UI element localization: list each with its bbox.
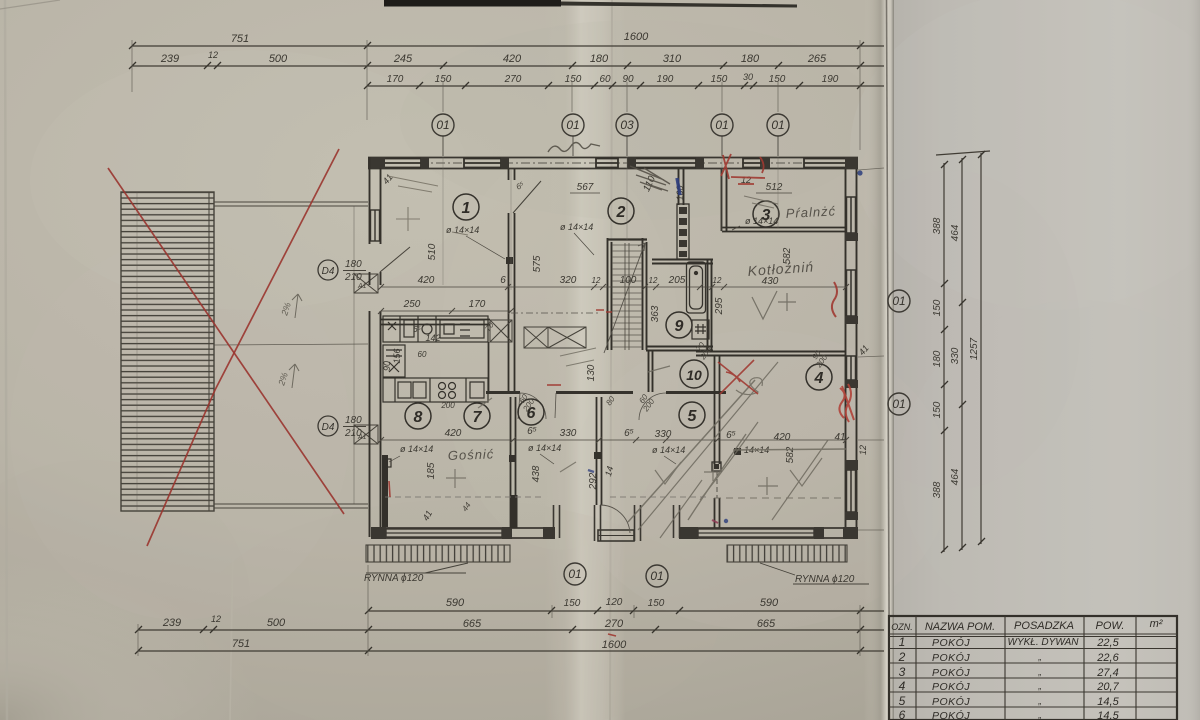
svg-text:14,5: 14,5 <box>1097 696 1119 708</box>
svg-text:567: 567 <box>577 182 594 193</box>
svg-text:WYKŁ. DYWAN: WYKŁ. DYWAN <box>1008 637 1080 648</box>
svg-text:751: 751 <box>231 33 249 45</box>
svg-text:6⁵: 6⁵ <box>624 428 634 439</box>
svg-text:510: 510 <box>427 243 438 260</box>
svg-text:180: 180 <box>590 53 609 65</box>
svg-text:200: 200 <box>440 401 455 410</box>
svg-text:OZN.: OZN. <box>891 622 913 632</box>
svg-text:14,5: 14,5 <box>1097 710 1119 720</box>
svg-text:30: 30 <box>743 72 753 82</box>
svg-text:150: 150 <box>435 74 452 85</box>
svg-text:1: 1 <box>462 200 471 217</box>
svg-text:4: 4 <box>899 679 906 693</box>
svg-text:„: „ <box>1038 681 1042 691</box>
svg-text:12: 12 <box>592 276 601 285</box>
svg-text:ø 14×14: ø 14×14 <box>528 443 561 453</box>
svg-text:RYNNA ϕ120: RYNNA ϕ120 <box>364 573 424 584</box>
svg-text:590: 590 <box>446 597 465 609</box>
svg-text:120: 120 <box>606 597 623 608</box>
svg-text:12: 12 <box>211 614 221 624</box>
svg-text:185: 185 <box>426 462 437 479</box>
svg-text:„: „ <box>1038 667 1042 677</box>
svg-text:150: 150 <box>711 74 728 85</box>
svg-text:512: 512 <box>766 182 783 193</box>
svg-text:420: 420 <box>503 53 522 65</box>
svg-text:„: „ <box>1038 710 1042 720</box>
svg-text:150: 150 <box>769 74 786 85</box>
svg-text:363: 363 <box>650 305 661 322</box>
svg-text:27,4: 27,4 <box>1096 667 1118 679</box>
svg-text:POKÓJ: POKÓJ <box>932 709 970 720</box>
svg-text:01: 01 <box>892 397 905 411</box>
svg-text:330: 330 <box>655 429 672 440</box>
svg-text:388: 388 <box>932 217 943 234</box>
svg-text:751: 751 <box>232 638 250 650</box>
svg-text:270: 270 <box>604 618 624 630</box>
svg-text:245: 245 <box>393 53 413 65</box>
svg-text:POKÓJ: POKÓJ <box>932 651 970 664</box>
svg-text:190: 190 <box>822 74 839 85</box>
svg-text:41: 41 <box>834 432 845 443</box>
svg-text:01: 01 <box>892 294 905 308</box>
svg-text:150: 150 <box>932 401 943 418</box>
svg-text:01: 01 <box>568 567 581 581</box>
svg-text:575: 575 <box>532 255 543 272</box>
svg-text:430: 430 <box>762 276 779 287</box>
svg-text:POKÓJ: POKÓJ <box>932 636 970 649</box>
svg-text:190: 190 <box>657 74 674 85</box>
svg-text:5: 5 <box>688 408 698 425</box>
svg-text:„: „ <box>1038 696 1042 706</box>
svg-text:7: 7 <box>473 409 483 426</box>
svg-text:180: 180 <box>741 53 760 65</box>
svg-text:12: 12 <box>649 276 658 285</box>
svg-text:420: 420 <box>418 275 435 286</box>
svg-text:Gośnić: Gośnić <box>448 446 495 463</box>
svg-text:388: 388 <box>932 481 943 498</box>
svg-text:6⁵: 6⁵ <box>726 430 736 441</box>
svg-text:582: 582 <box>782 247 793 264</box>
svg-text:5: 5 <box>899 694 906 708</box>
svg-text:2: 2 <box>616 204 626 221</box>
svg-text:180: 180 <box>345 415 362 426</box>
svg-text:12: 12 <box>858 445 868 455</box>
svg-text:205: 205 <box>668 275 686 286</box>
svg-text:170: 170 <box>387 74 404 85</box>
svg-text:12: 12 <box>713 276 722 285</box>
svg-text:A1: A1 <box>357 283 367 290</box>
svg-text:180: 180 <box>932 350 943 367</box>
svg-text:22,6: 22,6 <box>1096 652 1119 664</box>
svg-text:10: 10 <box>686 367 702 383</box>
svg-text:295: 295 <box>714 297 725 315</box>
svg-text:464: 464 <box>950 224 961 241</box>
svg-text:590: 590 <box>760 597 779 609</box>
svg-text:6⁵: 6⁵ <box>413 325 421 334</box>
svg-text:292: 292 <box>588 472 599 490</box>
svg-text:438: 438 <box>531 465 542 482</box>
svg-text:22,5: 22,5 <box>1096 637 1119 649</box>
svg-text:4: 4 <box>814 370 824 387</box>
svg-text:ø 14×14: ø 14×14 <box>652 445 685 455</box>
svg-text:01: 01 <box>715 118 728 132</box>
svg-text:NAZWA POM.: NAZWA POM. <box>925 621 995 633</box>
svg-text:01: 01 <box>436 118 449 132</box>
svg-text:01: 01 <box>771 118 784 132</box>
svg-text:8: 8 <box>414 409 423 426</box>
svg-text:150: 150 <box>565 74 582 85</box>
svg-text:6: 6 <box>899 708 906 720</box>
svg-text:420: 420 <box>445 428 462 439</box>
svg-text:01: 01 <box>566 118 579 132</box>
svg-text:9: 9 <box>675 318 684 335</box>
svg-text:6⁵: 6⁵ <box>527 426 537 437</box>
svg-text:1600: 1600 <box>624 31 649 43</box>
svg-text:90: 90 <box>382 361 392 371</box>
svg-text:100: 100 <box>620 275 637 286</box>
svg-text:180: 180 <box>345 259 362 270</box>
svg-text:1600: 1600 <box>602 639 627 651</box>
svg-text:ø 14×14: ø 14×14 <box>400 444 433 454</box>
svg-text:464: 464 <box>950 468 961 485</box>
svg-text:156: 156 <box>392 348 402 363</box>
svg-text:330: 330 <box>560 428 577 439</box>
svg-text:665: 665 <box>463 618 482 630</box>
svg-text:A1: A1 <box>357 434 367 441</box>
svg-text:D4: D4 <box>322 266 335 277</box>
svg-text:150: 150 <box>648 598 665 609</box>
svg-text:POKÓJ: POKÓJ <box>932 666 970 679</box>
svg-text:ø 14×14: ø 14×14 <box>745 216 778 226</box>
svg-text:60: 60 <box>418 350 427 359</box>
svg-text:500: 500 <box>269 53 288 65</box>
svg-text:POW.: POW. <box>1096 620 1125 632</box>
svg-text:„: „ <box>1038 652 1042 662</box>
svg-text:170: 170 <box>469 299 486 310</box>
svg-text:1257: 1257 <box>969 337 980 360</box>
svg-text:01: 01 <box>650 569 663 583</box>
svg-text:ø 14×14: ø 14×14 <box>560 222 593 232</box>
svg-text:239: 239 <box>160 53 179 65</box>
svg-text:12: 12 <box>208 50 218 60</box>
svg-text:239: 239 <box>162 617 181 629</box>
svg-text:310: 310 <box>663 53 682 65</box>
svg-text:2: 2 <box>898 650 906 664</box>
svg-text:150: 150 <box>564 598 581 609</box>
svg-text:142: 142 <box>425 333 440 343</box>
svg-text:60: 60 <box>599 74 611 85</box>
svg-text:270: 270 <box>504 74 522 85</box>
svg-text:330: 330 <box>950 347 961 364</box>
svg-text:Pŕalnżć: Pŕalnżć <box>785 203 836 221</box>
svg-text:665: 665 <box>757 618 776 630</box>
svg-text:POKÓJ: POKÓJ <box>932 680 970 693</box>
svg-text:POSADZKA: POSADZKA <box>1014 620 1074 632</box>
svg-text:250: 250 <box>403 299 421 310</box>
svg-text:RYNNA ϕ120: RYNNA ϕ120 <box>795 574 855 585</box>
svg-text:1: 1 <box>899 635 906 649</box>
svg-text:POKÓJ: POKÓJ <box>932 695 970 708</box>
svg-text:3: 3 <box>899 665 906 679</box>
svg-text:90: 90 <box>622 74 634 85</box>
svg-text:20,7: 20,7 <box>1096 681 1119 693</box>
svg-text:m²: m² <box>1150 618 1163 630</box>
svg-text:D4: D4 <box>322 422 335 433</box>
svg-text:03: 03 <box>620 118 634 132</box>
svg-text:6: 6 <box>500 275 506 286</box>
svg-text:265: 265 <box>807 53 827 65</box>
svg-text:320: 320 <box>560 275 577 286</box>
svg-text:150: 150 <box>932 299 943 316</box>
svg-text:500: 500 <box>267 617 286 629</box>
svg-text:420: 420 <box>774 432 791 443</box>
svg-text:130: 130 <box>586 364 597 381</box>
